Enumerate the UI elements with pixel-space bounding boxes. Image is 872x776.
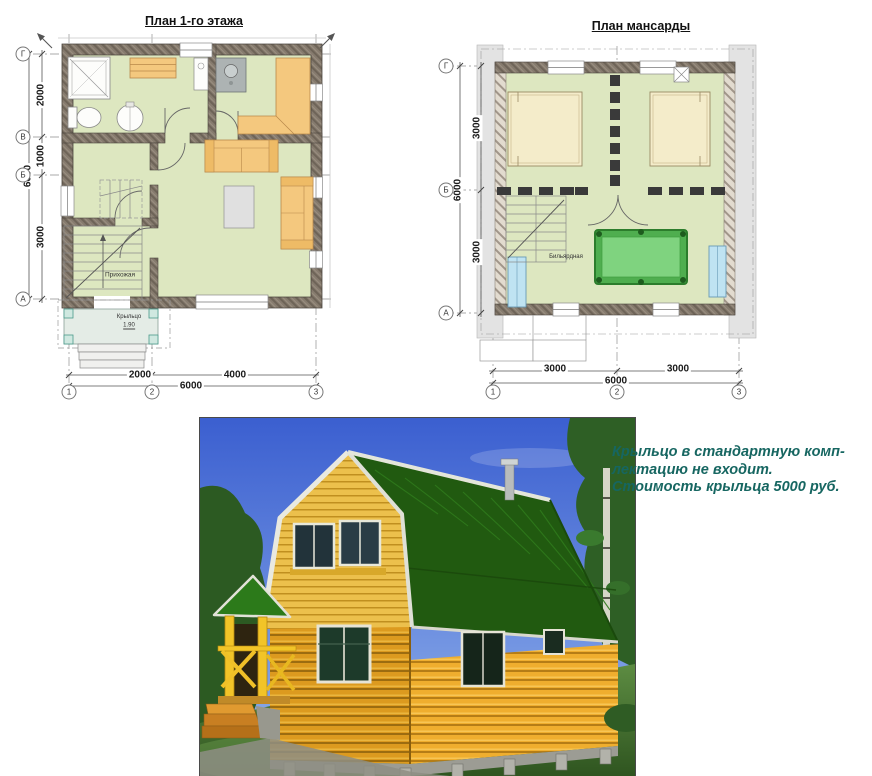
plan1-shelf-icon [130, 58, 176, 78]
plan1-dim-v2: 1000 [36, 143, 47, 169]
plan1-porch [58, 300, 170, 368]
plan2-bed-left-icon [508, 92, 582, 166]
house-render-photo [200, 418, 635, 776]
side-window-large [462, 632, 504, 686]
porch-steps [202, 704, 280, 740]
plan1-sofa-right-icon [281, 177, 313, 249]
porch-note: Крыльцо в стандартную комп- лектацию не … [612, 444, 872, 497]
plan1-toilet-icon [68, 107, 101, 128]
plan-first-floor [16, 34, 334, 389]
plan2-axis-g: Г [439, 59, 454, 74]
plan2-axis-2: 2 [610, 385, 625, 400]
plan2-axis-a: А [439, 306, 454, 321]
porch-note-line2: лектацию не входит. [612, 462, 872, 480]
plan1-axis-1: 1 [62, 385, 77, 400]
plan2-axis-3: 3 [732, 385, 747, 400]
house-wall-right [410, 644, 618, 764]
plan2-vent-icon [674, 67, 689, 82]
plan1-axis-v: В [16, 130, 31, 145]
plan1-table-icon [224, 186, 254, 228]
plan2-room-label-billiard: Бильярдная [549, 254, 583, 260]
plan2-dim-v1: 3000 [472, 115, 483, 141]
porch-note-line1: Крыльцо в стандартную комп- [612, 444, 872, 462]
plan1-dim-h-total: 6000 [178, 381, 204, 392]
plan2-axis-1: 1 [486, 385, 501, 400]
plan1-axis-a: А [16, 292, 31, 307]
page: План 1-го этажа 2000 1000 3000 6000 2000… [0, 0, 872, 776]
plan1-axis-g: Г [16, 47, 31, 62]
plan2-title: План мансарды [592, 19, 690, 33]
plan-attic [440, 45, 758, 386]
house-illustration [200, 418, 635, 776]
plan1-room-label-porch: Крыльцо [117, 314, 141, 320]
plan2-dim-h1: 3000 [542, 364, 568, 375]
plan1-kitchen-sink-counter [216, 58, 246, 92]
plan1-washer-icon [194, 58, 208, 90]
plan1-dim-h2: 4000 [222, 370, 248, 381]
plan1-axis-3: 3 [309, 385, 324, 400]
plan1-dim-v3: 3000 [36, 224, 47, 250]
front-window [318, 626, 370, 682]
plan1-title: План 1-го этажа [145, 14, 243, 28]
plan1-room-label-hallway: Прихожая [105, 272, 135, 279]
plan1-dim-v1: 2000 [36, 82, 47, 108]
porch-note-line3: Стоимость крыльца 5000 руб. [612, 479, 872, 497]
plan2-bed-right-icon [650, 92, 710, 166]
plan1-sofa-top-icon [205, 140, 278, 172]
plan1-entry-door-gap [94, 296, 130, 309]
plan2-dim-v-total: 6000 [453, 177, 464, 203]
plan1-shower-icon [68, 57, 110, 99]
side-window-small [544, 630, 564, 654]
plan1-axis-2: 2 [145, 385, 160, 400]
plan1-dim-h1: 2000 [127, 370, 153, 381]
plan1-porch-steps [78, 344, 146, 368]
plan2-dim-h2: 3000 [665, 364, 691, 375]
plan2-dim-v2: 3000 [472, 239, 483, 265]
plan2-axis-b: Б [439, 183, 454, 198]
plan2-billiard-table-icon [595, 229, 687, 285]
plan1-axis-b: Б [16, 168, 31, 183]
plan1-porch-level: 1.90 [123, 323, 135, 330]
